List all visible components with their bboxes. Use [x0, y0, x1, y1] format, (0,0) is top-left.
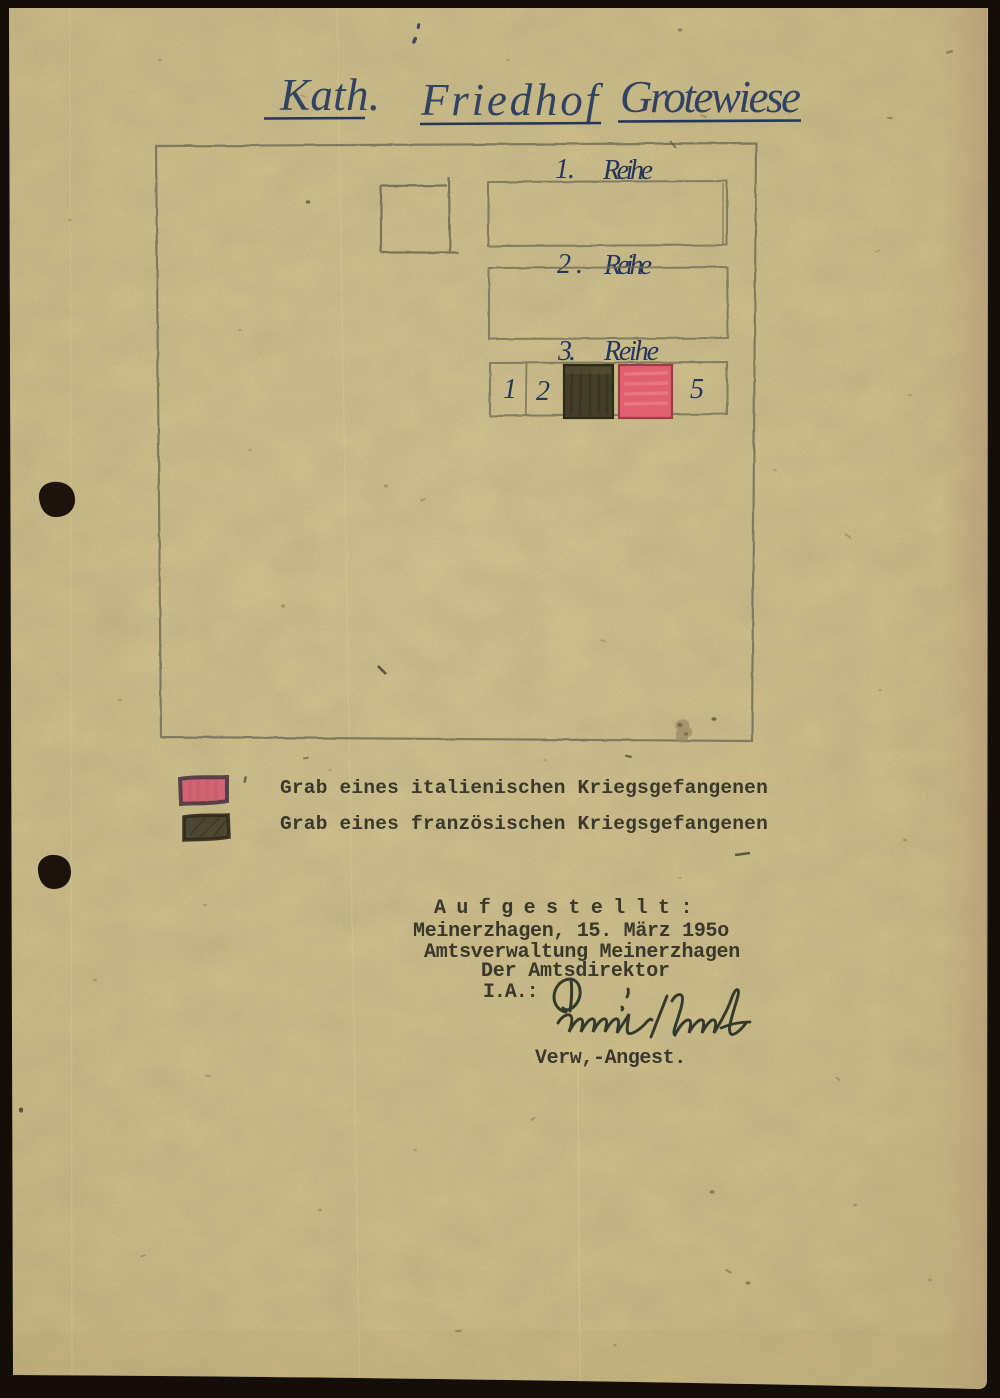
svg-text:1.: 1. [555, 154, 575, 185]
svg-text:A u f g e s t e l l t :: A u f g e s t e l l t : [434, 897, 692, 920]
svg-text:2.: 2. [557, 249, 583, 280]
svg-text:Grab eines italienischen Krieg: Grab eines italienischen Kriegsgefangene… [280, 777, 768, 799]
svg-text:Grab eines französischen Krieg: Grab eines französischen Kriegsgefangene… [280, 813, 768, 835]
svg-text:1: 1 [503, 374, 517, 405]
svg-text:Kath.: Kath. [279, 70, 380, 120]
svg-text:Verw,-Angest.: Verw,-Angest. [535, 1047, 686, 1070]
svg-text:Grotewiese: Grotewiese [620, 72, 801, 122]
svg-text:2: 2 [536, 376, 550, 407]
svg-text:Friedhof: Friedhof [420, 75, 603, 125]
svg-text:Meinerzhagen, 15. März 195o: Meinerzhagen, 15. März 195o [413, 920, 729, 943]
svg-text:Reihe: Reihe [603, 250, 652, 281]
svg-text:I.A.:: I.A.: [483, 981, 538, 1004]
svg-text:5: 5 [690, 374, 704, 405]
